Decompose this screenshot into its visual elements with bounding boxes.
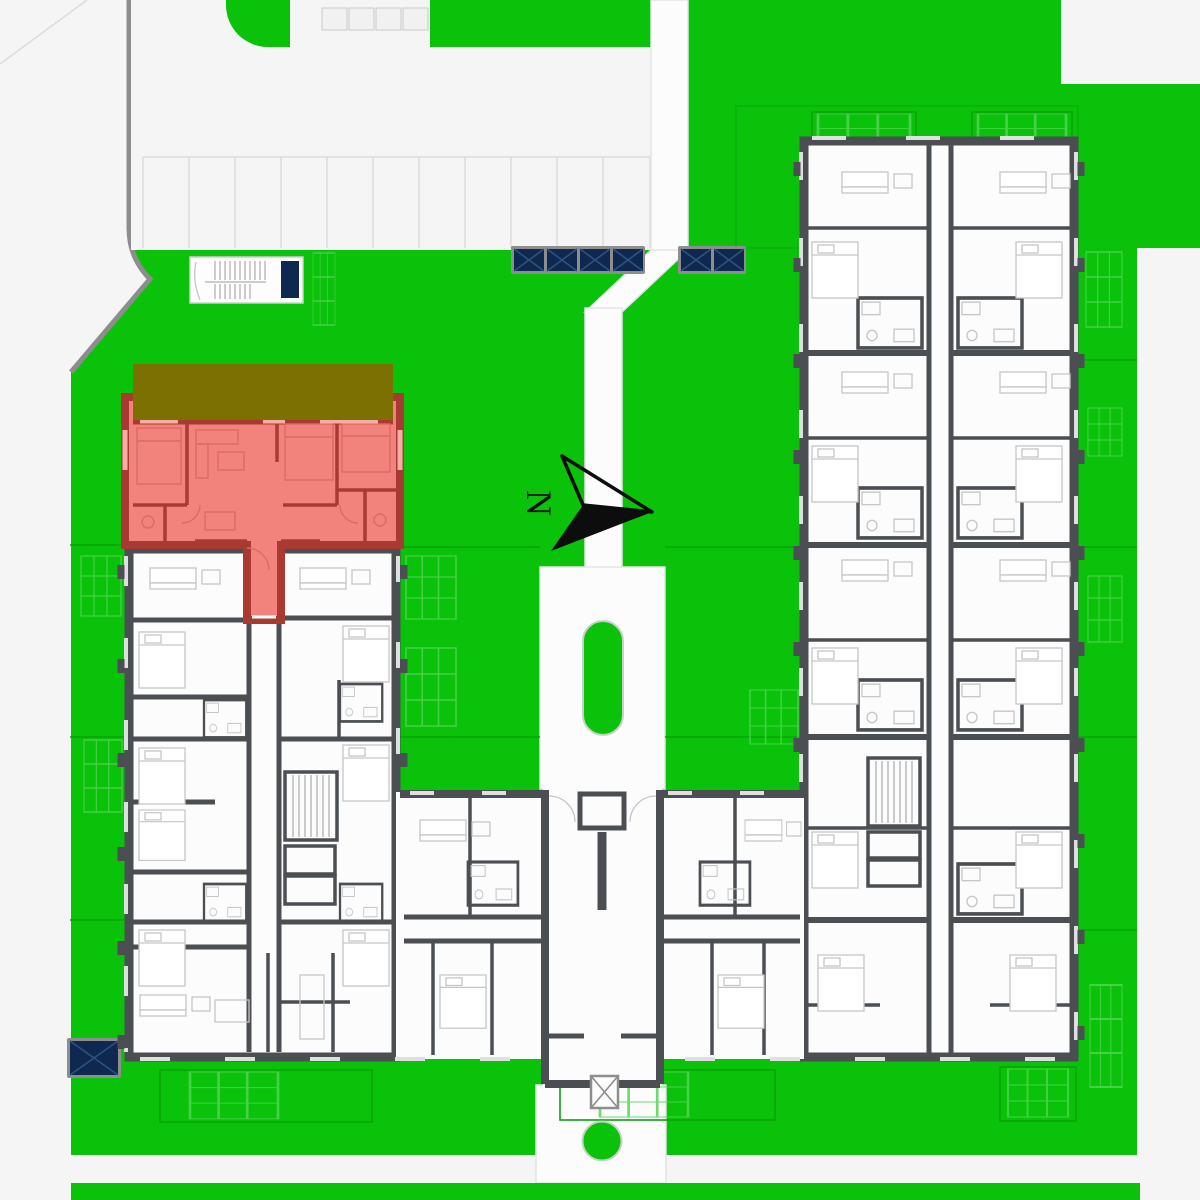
stair-elevator-shaft bbox=[281, 261, 299, 298]
road-east-strip bbox=[1137, 248, 1200, 1200]
skylight-group-west bbox=[511, 246, 645, 274]
lawn-strips-bottom bbox=[73, 1183, 1140, 1200]
skylight-group-east bbox=[678, 246, 746, 274]
courtyard-island bbox=[583, 621, 623, 735]
road-top-right-block bbox=[1061, 0, 1200, 84]
highlighted-unit-terrace[interactable] bbox=[133, 364, 393, 420]
east-wing-floorplan bbox=[797, 137, 1081, 1061]
structural-column bbox=[591, 1076, 618, 1108]
exterior-stairs bbox=[190, 257, 303, 303]
north-label: N bbox=[519, 490, 559, 516]
parking-area bbox=[131, 0, 655, 250]
skylight-southwest bbox=[67, 1038, 121, 1078]
courtyard-circle bbox=[583, 1122, 622, 1161]
site-plan: N bbox=[0, 0, 1200, 1200]
